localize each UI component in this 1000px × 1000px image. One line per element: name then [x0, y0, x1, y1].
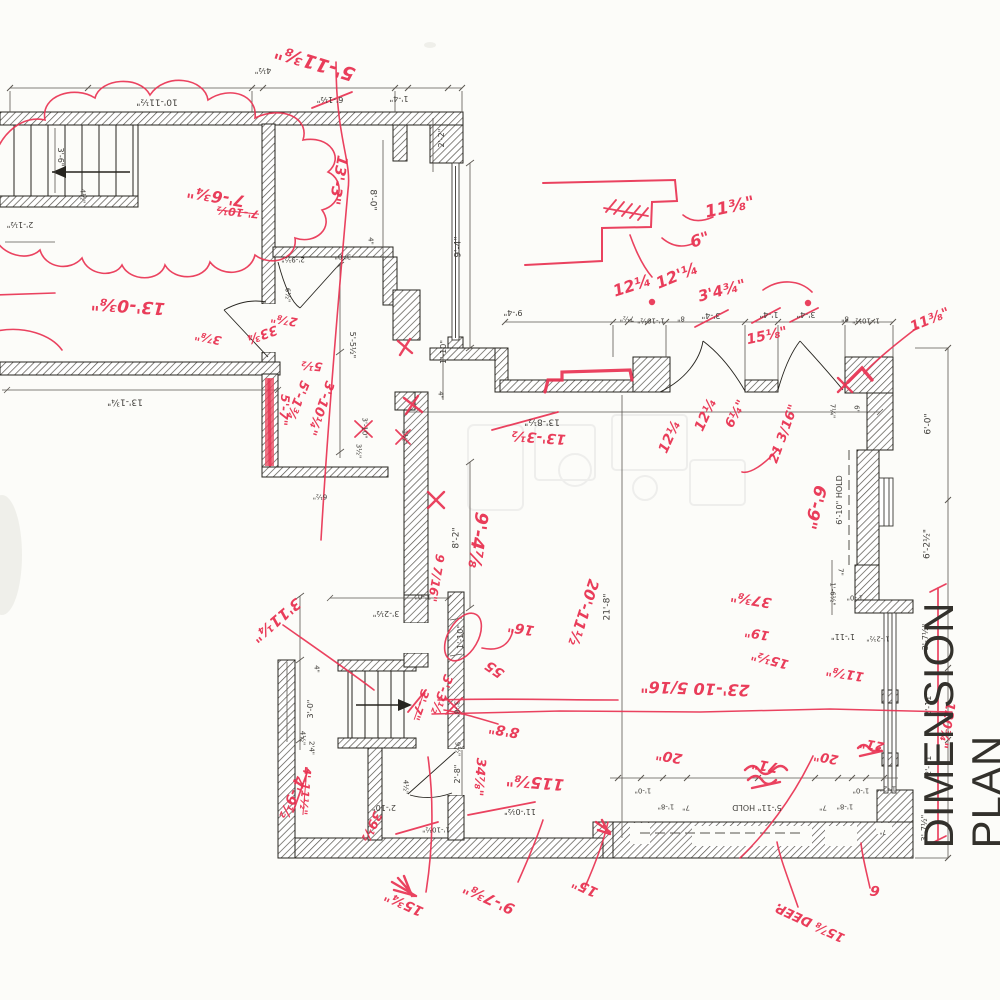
dim-label: 7" — [837, 568, 844, 576]
dim-label-hold: 6'-10" HOLD — [836, 475, 844, 525]
dim-label: 9'-4" — [504, 308, 523, 316]
dim-label: 7" — [819, 804, 827, 811]
red-markup: 20" — [655, 747, 684, 765]
red-markup: 5½ — [301, 359, 323, 373]
dim-label: 1'-0" — [853, 787, 870, 794]
dim-label: 1'-10½" — [637, 317, 665, 324]
dim-label: 7" — [880, 828, 887, 834]
dim-label: 4" — [437, 391, 444, 399]
dim-label: 1'-2" — [880, 785, 897, 792]
plan-canvas: 10'-11½" 4½" 6'-1½" 1'-4" 2'-2" 9'-4" 8'… — [0, 0, 1000, 1000]
dim-label: 2'4" — [308, 741, 315, 755]
dim-label: 1'-0" — [847, 594, 864, 601]
dim-label: 1'-2½" — [866, 635, 889, 642]
dim-label: 2'-1½" — [7, 220, 34, 228]
dim-label: 3'-8" — [453, 701, 460, 718]
dim-label: 1'-10½" — [422, 826, 450, 833]
dim-label: 8" — [677, 315, 685, 322]
drawing-title: DIMENSION PLAN — [915, 601, 1000, 848]
dim-label: 21'-8" — [604, 593, 613, 620]
dim-label: 6'-2½" — [924, 529, 933, 559]
red-markup: 23'-10 5/16" — [640, 678, 750, 698]
dim-label: 10'-11½" — [136, 97, 178, 106]
dim-label: 2'-8" — [454, 765, 462, 784]
dim-label: 1'-0" — [635, 787, 652, 794]
dim-label: 1'-8" — [658, 803, 675, 810]
dim-label: 1'-10" — [440, 340, 448, 364]
dim-label: 3'-4" — [702, 311, 721, 319]
dim-label: 3'-6" — [56, 148, 64, 167]
dim-label: 1½" — [401, 430, 408, 444]
dim-label: 8" — [841, 315, 849, 322]
dim-label: 7" — [682, 804, 690, 811]
dim-label: 1'-11" — [831, 632, 855, 640]
red-scribbles — [392, 339, 882, 896]
dim-label: 1'-4" — [390, 94, 409, 102]
dim-label: 6'-1½" — [317, 95, 344, 103]
dim-label: 3'-0" — [307, 700, 315, 719]
sketch-hatch-scribble — [604, 200, 648, 220]
dim-label: 2'-2" — [438, 129, 446, 148]
dim-label: 6½" — [284, 288, 291, 302]
red-markup: 5'-7" — [277, 394, 292, 427]
red-markup: 20" — [813, 748, 840, 765]
dim-label: 4½" — [79, 189, 86, 203]
red-markup: 19" — [744, 624, 771, 641]
dim-label: 13'-1¾" — [107, 397, 143, 406]
dim-label: 9'-4" — [455, 236, 464, 257]
dim-label-circled: 1'-10" — [457, 625, 465, 649]
red-markup: 21" — [859, 735, 886, 752]
red-markup: 34⅞" — [471, 757, 487, 796]
dim-label: 6'-0" — [925, 413, 934, 434]
dimension-lines — [2, 85, 951, 861]
floor-plan-drawing — [0, 0, 1000, 1000]
red-stair-sketch — [525, 180, 677, 265]
dim-label: 3'-2½" — [373, 609, 400, 617]
dim-label: 3'-4" — [797, 310, 816, 318]
red-markup: 71" — [751, 756, 780, 774]
dim-underline — [432, 709, 952, 714]
dim-label: 1'-4" — [760, 310, 779, 318]
dim-label: 4½" — [299, 731, 306, 745]
dim-label: 7¼" — [829, 404, 836, 418]
red-markup: 13'-3½ — [512, 428, 567, 446]
dim-label: 3'-10" — [361, 417, 368, 438]
dim-label: 13'-8½" — [524, 417, 560, 426]
dim-label: 7½" — [620, 315, 634, 322]
dim-label: 8'-0" — [368, 189, 377, 210]
dim-label: 6½" — [313, 493, 327, 500]
dim-label: 4" — [367, 237, 374, 245]
dim-label: 4½" — [402, 780, 409, 794]
dim-label: 4½" — [255, 66, 272, 74]
red-markup: 16" — [507, 619, 536, 637]
dim-label: 9½" — [454, 742, 461, 756]
dim-label: 5'-5½" — [348, 332, 356, 359]
dim-label-hold: 5'-11" HOLD — [732, 803, 782, 811]
dim-label: 3½" — [355, 444, 362, 458]
dim-label: 4" — [313, 665, 320, 673]
dim-label: 1'-6½" — [829, 582, 836, 605]
stairs — [14, 125, 412, 738]
dim-label: 1'-8" — [837, 803, 854, 810]
dim-label: 2'-9½" — [281, 256, 304, 263]
dim-label: 6" — [853, 405, 860, 413]
dim-label: 8'-2" — [453, 527, 462, 548]
dim-label: 3'-0" — [335, 253, 352, 260]
red-markup: 115⅞" — [505, 771, 564, 792]
dim-label: 1'-10½" — [852, 317, 880, 324]
red-markup: 13'-0⅜" — [90, 294, 165, 316]
dim-label: 11'-0½" — [504, 807, 536, 815]
